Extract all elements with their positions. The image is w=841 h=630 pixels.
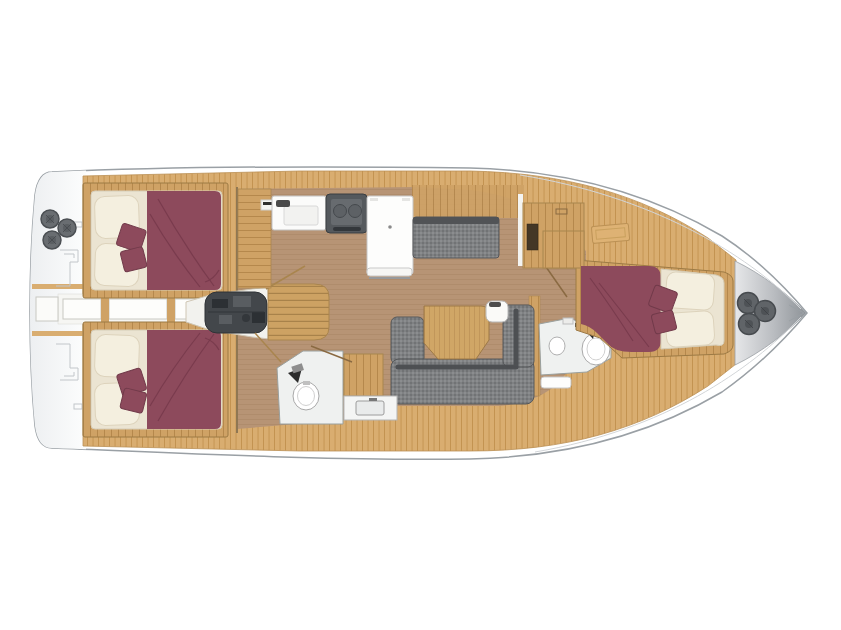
locker-door [527,224,538,250]
refrigerator [367,196,413,278]
bath-mat [541,377,571,388]
duvet [147,191,221,290]
winch-icon [43,231,61,249]
salon-paneling [412,185,524,218]
aft-cabin-starboard [83,322,228,437]
duvet [147,330,221,429]
bow-fitting-icon [739,314,760,335]
burner-icon [349,205,362,218]
sofa-left-arm [391,317,424,364]
aft-cabin-port [83,183,228,298]
settee-bench [413,217,499,258]
washbasin [344,396,397,420]
winch-icon [58,219,76,237]
yacht-floor-plan [0,0,841,630]
floor-plan-svg [0,0,841,630]
aft-head [277,346,397,424]
head-cabinet [344,354,383,396]
burner-icon [334,205,347,218]
salon-table [424,306,489,359]
stove [326,194,367,233]
forward-cabinet [543,231,584,268]
faucet-icon [276,200,290,207]
toilet-icon [293,381,319,410]
deck-hatch [591,223,629,243]
winch-icon [41,210,59,228]
washbasin [549,337,565,355]
galley-sink [272,196,326,230]
